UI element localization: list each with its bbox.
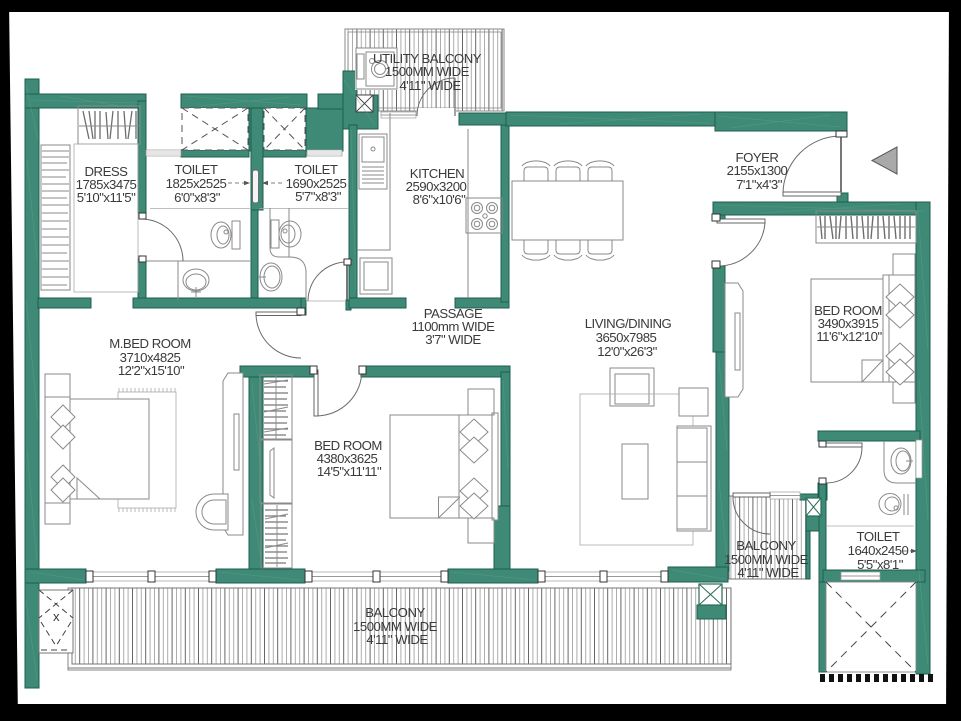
svg-text:11'6"x12'10": 11'6"x12'10" [816, 329, 882, 344]
svg-text:BALCONY: BALCONY [365, 605, 425, 620]
svg-text:5'10"x11'5": 5'10"x11'5" [77, 190, 136, 205]
svg-text:M.BED ROOM: M.BED ROOM [109, 336, 190, 351]
svg-text:4'11" WIDE: 4'11" WIDE [366, 632, 428, 647]
svg-text:x: x [53, 609, 60, 624]
svg-text:5'5"x8'1": 5'5"x8'1" [857, 557, 904, 572]
svg-text:12'0"x26'3": 12'0"x26'3" [597, 344, 657, 359]
svg-text:LIVING/DINING: LIVING/DINING [585, 316, 672, 331]
svg-text:2155x1300: 2155x1300 [727, 163, 788, 178]
svg-text:1640x2450: 1640x2450 [848, 543, 909, 558]
svg-text:TOILET: TOILET [295, 162, 338, 177]
svg-text:14'5"x11'11": 14'5"x11'11" [317, 464, 382, 479]
svg-text:4'11" WIDE: 4'11" WIDE [399, 78, 461, 93]
svg-text:BALCONY: BALCONY [736, 538, 796, 553]
svg-text:1825x2525: 1825x2525 [166, 176, 227, 191]
svg-text:7'1"x4'3": 7'1"x4'3" [736, 177, 783, 192]
svg-text:TOILET: TOILET [175, 162, 218, 177]
svg-text:5'7"x8'3": 5'7"x8'3" [295, 189, 342, 204]
svg-text:6'0"x8'3": 6'0"x8'3" [174, 190, 221, 205]
svg-text:12'2"x15'10": 12'2"x15'10" [118, 363, 185, 378]
svg-text:3'7" WIDE: 3'7" WIDE [425, 332, 481, 347]
svg-text:TOILET: TOILET [857, 529, 900, 544]
svg-text:4'11" WIDE: 4'11" WIDE [737, 565, 799, 580]
svg-text:3650x7985: 3650x7985 [596, 330, 657, 345]
svg-text:8'6"x10'6": 8'6"x10'6" [413, 192, 466, 207]
svg-text:1500MM WIDE: 1500MM WIDE [385, 64, 470, 79]
